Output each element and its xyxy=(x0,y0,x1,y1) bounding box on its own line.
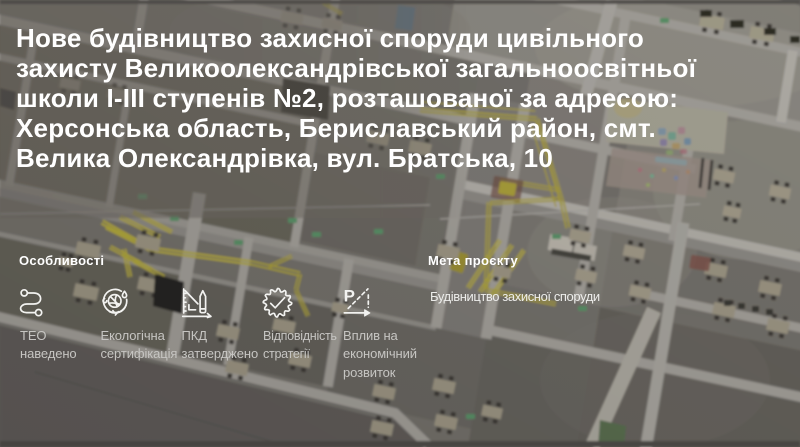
svg-text:P: P xyxy=(344,287,355,306)
